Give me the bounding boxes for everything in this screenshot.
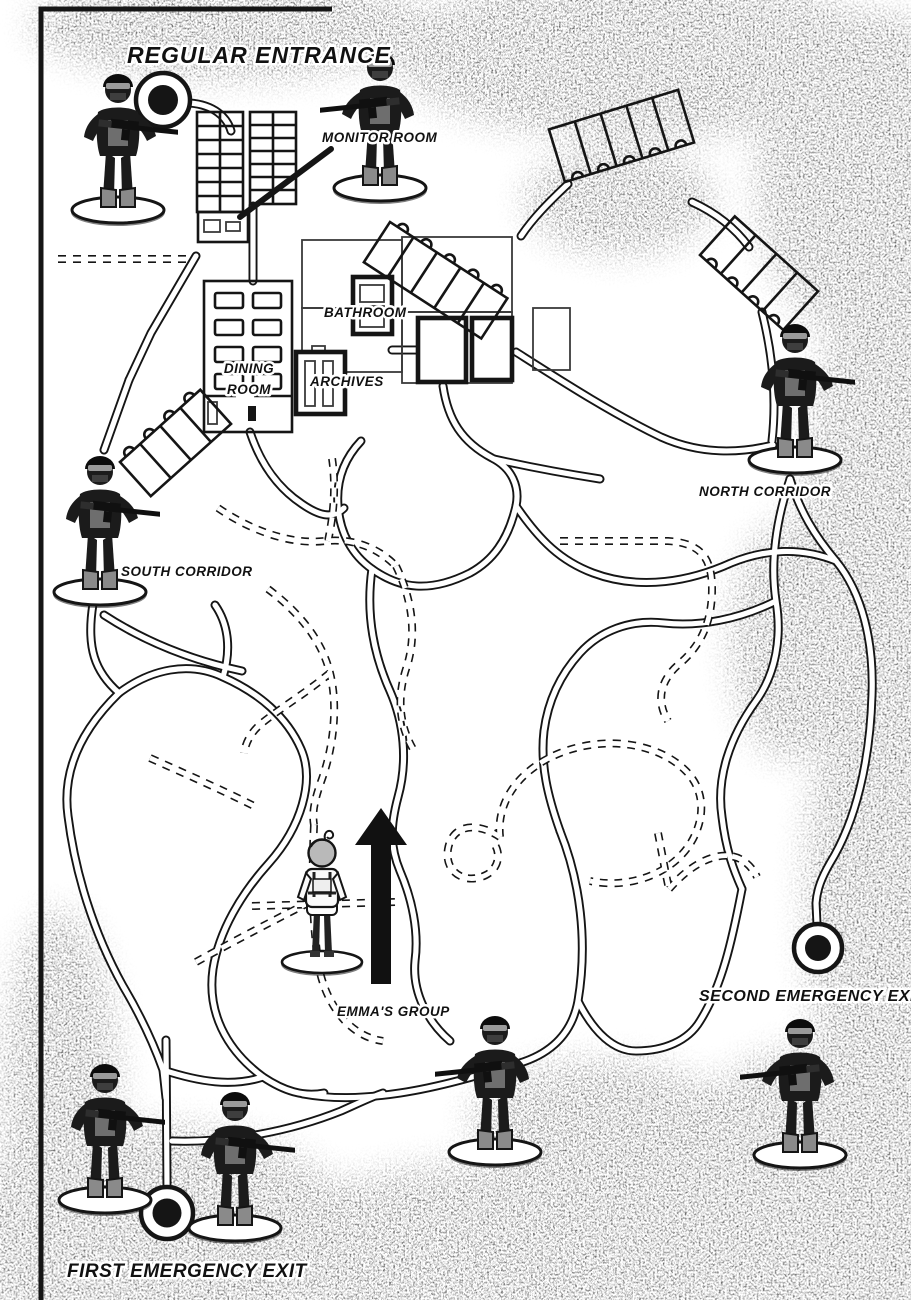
manga-map-panel: REGULAR ENTRANCE MONITOR ROOM BATHROOM D… <box>0 0 911 1300</box>
label-south-corridor: SOUTH CORRIDOR <box>121 564 253 579</box>
label-emmas-group: EMMA'S GROUP <box>337 1004 450 1019</box>
label-north-corridor: NORTH CORRIDOR <box>699 484 831 499</box>
label-bathroom: BATHROOM <box>324 305 407 320</box>
label-dining-room-line2: ROOM <box>227 382 271 397</box>
label-archives: ARCHIVES <box>309 374 384 389</box>
label-regular-entrance: REGULAR ENTRANCE <box>127 42 391 68</box>
label-dining-room-line1: DINING <box>224 361 274 376</box>
facility-escape-map: REGULAR ENTRANCE MONITOR ROOM BATHROOM D… <box>0 0 911 1300</box>
label-monitor-room: MONITOR ROOM <box>322 130 438 145</box>
storage-room-b <box>472 318 512 380</box>
label-first-emergency-exit: FIRST EMERGENCY EXIT <box>67 1261 308 1282</box>
second-emergency-exit-marker <box>794 924 842 972</box>
storage-room-a <box>418 318 466 382</box>
label-second-emergency-exit: SECOND EMERGENCY EXIT <box>699 988 911 1005</box>
